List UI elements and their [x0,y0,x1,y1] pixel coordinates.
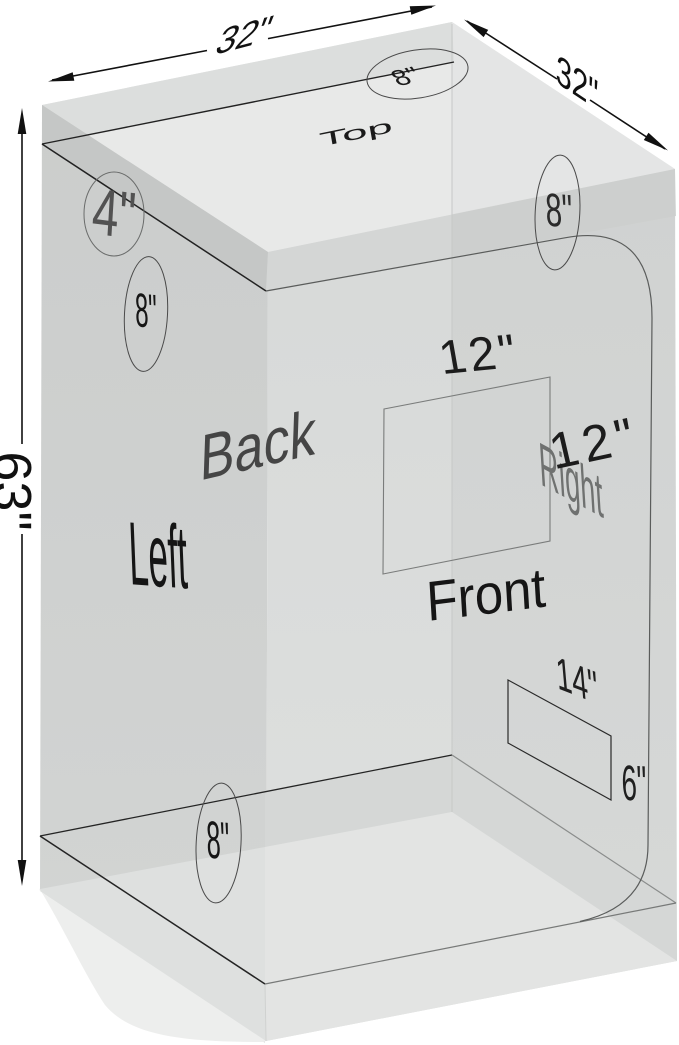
svg-text:8": 8" [544,184,574,239]
svg-text:8": 8" [134,285,158,340]
svg-text:6": 6" [620,754,647,812]
svg-text:8": 8" [205,809,231,871]
svg-text:12": 12" [435,325,523,385]
svg-text:4": 4" [90,175,138,254]
svg-text:63": 63" [0,451,42,530]
svg-text:Left: Left [127,504,189,608]
